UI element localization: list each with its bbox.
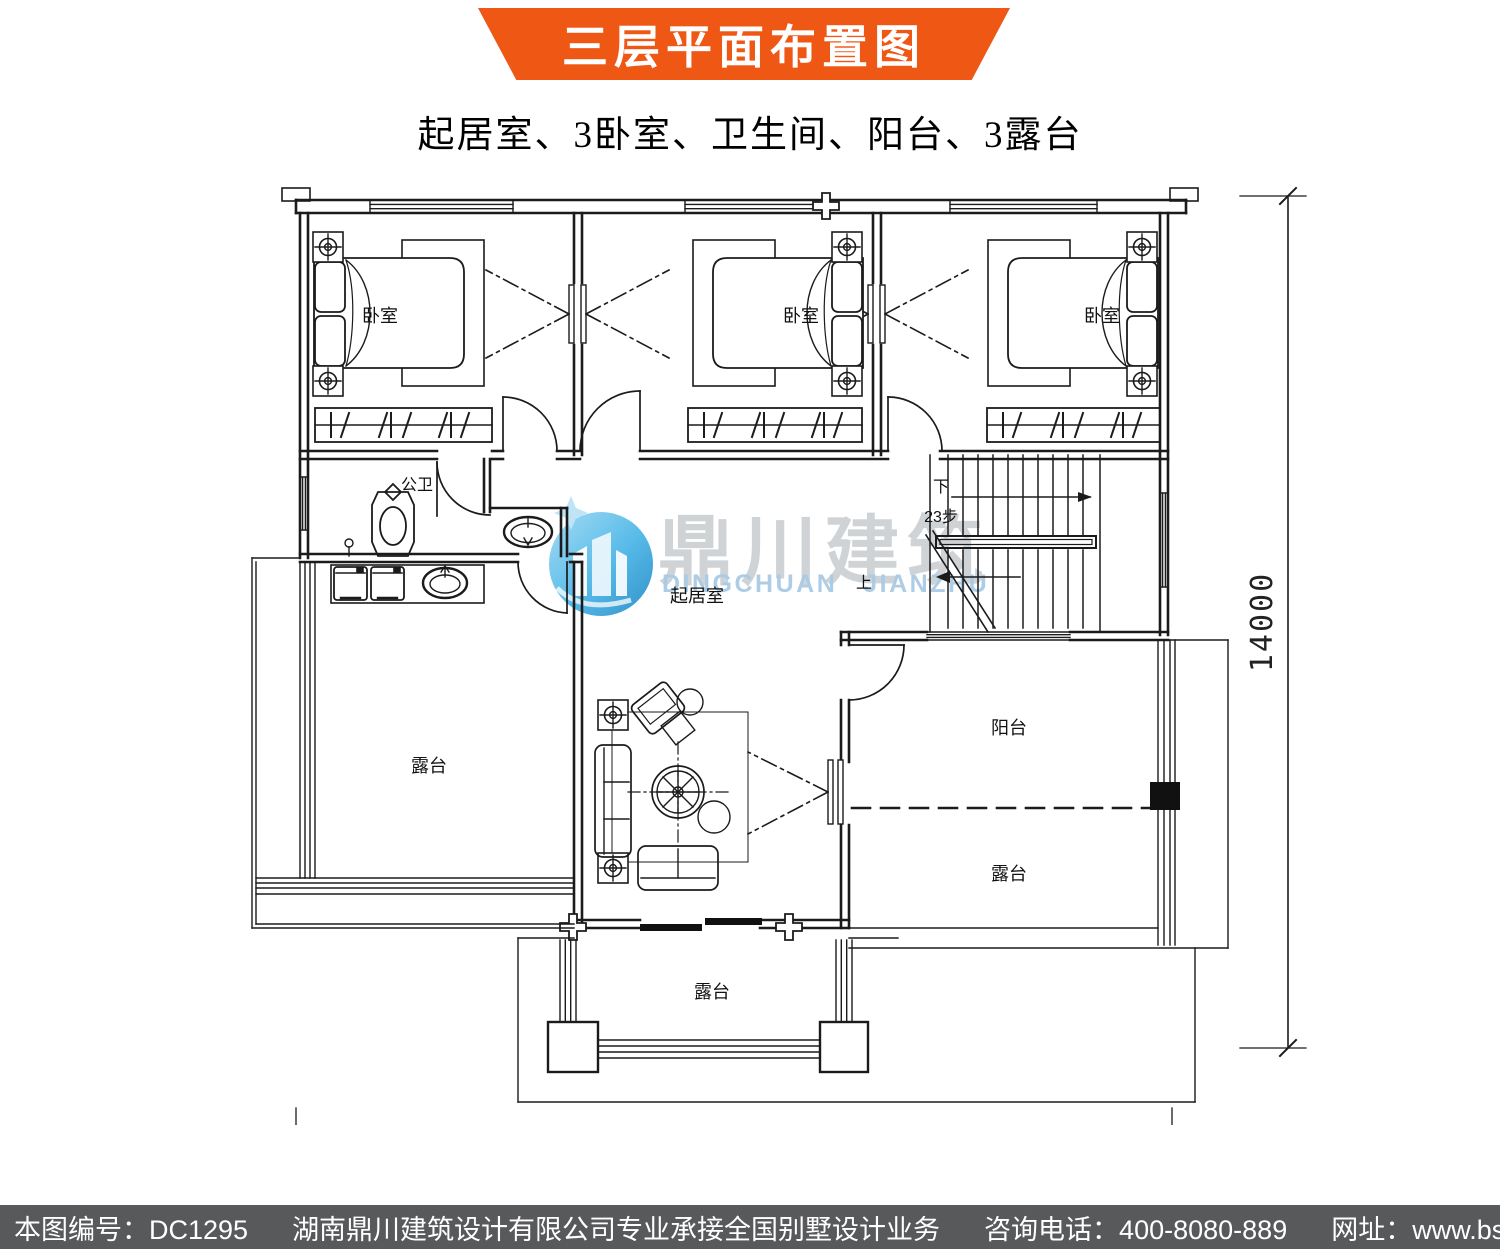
door-bathroom <box>437 462 490 516</box>
title-banner: 三层平面布置图 <box>478 8 1010 80</box>
terrace-column-1 <box>548 1022 598 1072</box>
drawing-number: 本图编号：DC1295 <box>14 1208 248 1247</box>
terrace-column-2 <box>820 1022 868 1072</box>
room-label-bedroom-3: 卧室 <box>1084 306 1120 326</box>
door-terrace-left <box>518 562 567 613</box>
bedroom-2-furniture <box>688 232 863 442</box>
window-stairs-south <box>927 632 1070 640</box>
window-divider-2 <box>868 285 885 343</box>
laundry-counter <box>331 565 484 603</box>
staircase <box>926 455 1100 632</box>
floor-plan-drawing: 14000 14500 卧室 卧室 卧室 公卫 起居室 阳台 露台 露台 露台 … <box>240 180 1310 1125</box>
footer-bar: 本图编号：DC1295 湖南鼎川建筑设计有限公司专业承接全国别墅设计业务 咨询电… <box>0 1205 1500 1249</box>
door-balcony <box>849 645 904 700</box>
plan-subtitle: 起居室、3卧室、卫生间、阳台、3露台 <box>0 104 1500 158</box>
door-bedroom-2 <box>580 391 640 451</box>
counter-sink-icon <box>423 566 467 598</box>
living-room-furniture <box>595 680 748 890</box>
phone-number: 咨询电话：400-8080-889 <box>984 1208 1287 1247</box>
room-label-balcony: 阳台 <box>991 718 1027 738</box>
company-name: 湖南鼎川建筑设计有限公司专业承接全国别墅设计业务 <box>292 1208 940 1247</box>
room-label-bedroom-1: 卧室 <box>362 306 398 326</box>
window-bedroom-2 <box>685 200 828 213</box>
door-bedroom-3 <box>888 397 942 451</box>
terrace-bottom <box>518 938 1195 1102</box>
room-label-terrace-left: 露台 <box>411 756 447 776</box>
sofa-loveseat-icon <box>638 846 718 890</box>
stairs-steps-label: 23步 <box>924 508 958 526</box>
window-divider-1 <box>569 285 586 343</box>
room-label-terrace-bottom: 露台 <box>694 982 730 1002</box>
page-title: 三层平面布置图 <box>562 11 926 77</box>
window-bedroom-1 <box>370 200 513 213</box>
appliance-1-icon <box>334 567 367 600</box>
room-label-bedroom-2: 卧室 <box>783 306 819 326</box>
sofa-long-icon <box>595 745 631 857</box>
room-labels: 卧室 卧室 卧室 公卫 起居室 阳台 露台 露台 露台 下 23步 上 <box>362 306 1120 1002</box>
dimension-right: 14000 <box>1240 188 1306 1056</box>
website-url[interactable]: 网址：www.bstzcs.com <box>1331 1208 1500 1247</box>
terrace-left <box>252 558 574 928</box>
door-bedroom-1 <box>503 397 557 451</box>
stairs-up-label: 上 <box>856 574 872 592</box>
dimension-width-value: 14500 <box>684 1124 784 1125</box>
window-bedroom-3 <box>950 200 1097 213</box>
room-label-living-room: 起居室 <box>670 586 724 606</box>
bedroom-1-furniture <box>313 232 492 442</box>
doors <box>437 391 942 700</box>
stairs-down-label: 下 <box>933 479 949 496</box>
bedroom-3-furniture <box>987 232 1160 442</box>
appliance-2-icon <box>371 567 404 600</box>
washbasin-icon <box>504 517 552 547</box>
dimension-height-value: 14000 <box>1245 572 1280 672</box>
room-label-bathroom: 公卫 <box>401 477 433 494</box>
balcony-terrace-right <box>849 640 1228 948</box>
room-label-terrace-right: 露台 <box>991 864 1027 884</box>
dimension-bottom: 14500 <box>288 1108 1180 1125</box>
window-living-east <box>828 760 843 824</box>
sliding-door <box>640 918 762 931</box>
plant-icon <box>698 801 730 833</box>
floor-plan-page: 三层平面布置图 起居室、3卧室、卫生间、阳台、3露台 鼎川建筑 DINGCHUA… <box>0 0 1500 1249</box>
column-solid <box>1150 782 1180 810</box>
toilet-icon <box>372 484 414 556</box>
